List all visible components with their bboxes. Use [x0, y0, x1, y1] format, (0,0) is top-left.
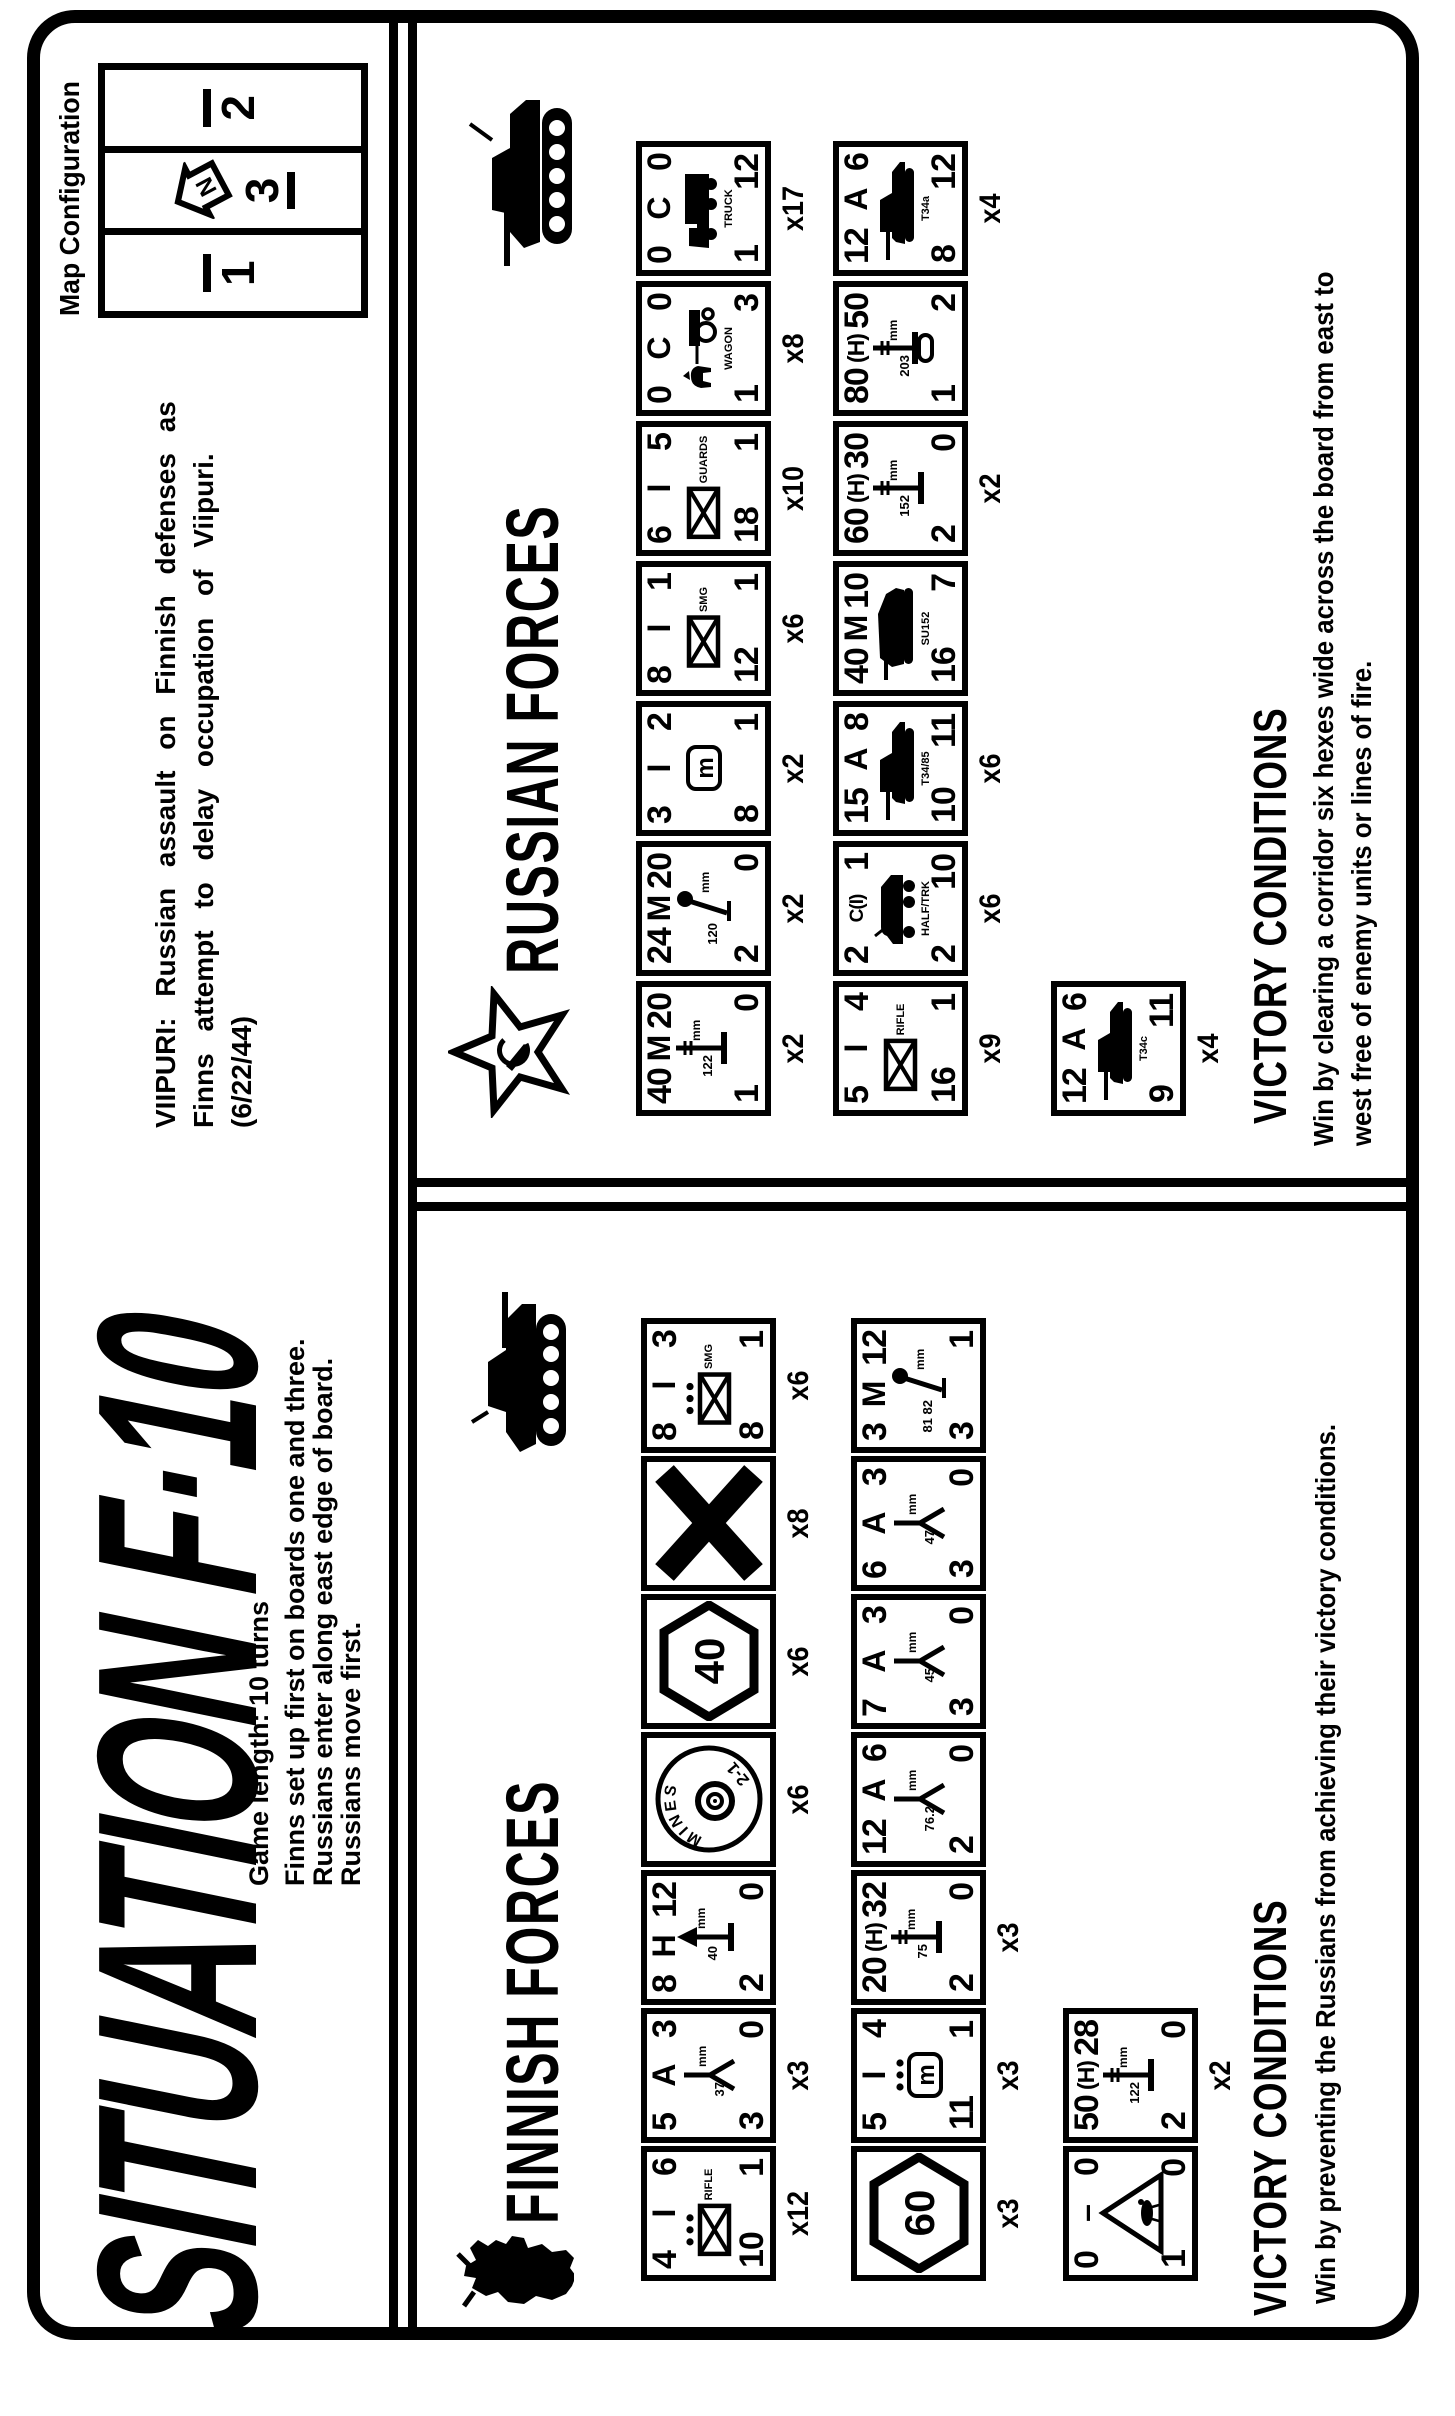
antitank-gun-symbol-icon: 76.2 mm	[888, 1745, 950, 1855]
map-board-1: 1	[105, 228, 361, 311]
north-arrow-icon: N	[171, 159, 229, 223]
counter-top-values: 12A6	[1058, 993, 1092, 1104]
mortar-symbol-icon: 120 mm	[673, 854, 735, 964]
russian-victory-conditions-text-line-1: Win by clearing a corridor six hexes wid…	[1310, 272, 1338, 1146]
counter-multiplier: x17	[777, 148, 811, 270]
counter-bottom-values: 111	[945, 2021, 979, 2130]
block-x-symbol-icon	[647, 1462, 770, 1585]
counter-top-values: 15A8	[840, 713, 874, 824]
board-number: 3	[235, 172, 295, 210]
counter-multiplier: x6	[782, 1325, 816, 1447]
counter-su152: 40M10 SU152 167	[833, 561, 968, 696]
counter-bottom-values: 10	[1157, 2159, 1191, 2268]
header-divider-rule-1	[389, 23, 398, 2327]
counter-multiplier: x3	[992, 2153, 1026, 2275]
counter-bottom-values: 10	[730, 994, 764, 1103]
svg-text:mm: mm	[905, 1494, 919, 1515]
counter-multiplier: x6	[974, 708, 1008, 830]
counter-top-values: 0C0	[643, 153, 677, 264]
card-stage: SITUATION F·10 VIIPURI: Russian assault …	[0, 0, 1455, 2416]
board-number: 1	[203, 254, 263, 292]
svg-text:75: 75	[915, 1945, 930, 1959]
counter-bottom-values: 20	[945, 1883, 979, 1992]
hex-marker-icon: 60	[866, 2154, 972, 2274]
svg-text:mm: mm	[1116, 2047, 1130, 2068]
svg-text:81 82: 81 82	[920, 1401, 935, 1434]
counter-bottom-values: 30	[945, 1607, 979, 1716]
counter-multiplier: x6	[777, 568, 811, 690]
svg-text:122: 122	[1127, 2083, 1142, 2105]
counter-75mm: 20(H)32 75 mm 20	[851, 1870, 986, 2005]
svg-text:mm: mm	[886, 320, 900, 341]
counter-bottom-values: 30	[735, 2021, 769, 2130]
counter-bottom-values: 911	[1145, 994, 1179, 1103]
counter-bottom-values: 20	[945, 1745, 979, 1854]
counter-top-values: 12A6	[840, 153, 874, 264]
first-move-note: Russians move first.	[338, 1622, 365, 1886]
counter-bottom-values: 20	[735, 1883, 769, 1992]
counter-203mm: 80(H)50 203 mm 12	[833, 281, 968, 416]
counter-top-values: 5I4	[858, 2020, 892, 2131]
counter-tri: 0–0 10	[1063, 2146, 1198, 2281]
setup-note-finns: Finns set up first on boards one and thr…	[282, 1338, 309, 1886]
finnish-tank-illustration-icon	[462, 1290, 582, 1472]
counter-multiplier: x2	[777, 988, 811, 1110]
truck-silhouette-icon	[673, 157, 719, 261]
counter-multiplier: x6	[782, 1601, 816, 1723]
counter-top-values: 8I1	[643, 573, 677, 684]
counter-81-82mm: 3M12 81 82 mm 31	[851, 1318, 986, 1453]
finnish-lion-emblem-icon	[444, 2232, 574, 2324]
counter-multiplier: x3	[992, 1877, 1026, 1999]
infantry-symbol-icon: SMG	[685, 1344, 733, 1427]
counter-bottom-values: 1011	[927, 714, 961, 823]
counter-multiplier: x6	[782, 1739, 816, 1861]
infantry-symbol-icon: RIFLE	[883, 1004, 919, 1094]
setup-note-russians: Russians enter along east edge of board.	[310, 1358, 337, 1886]
antitank-gun-symbol-icon: 37 mm	[678, 2021, 740, 2131]
svg-text:40: 40	[686, 1638, 733, 1685]
infantry-symbol-icon: GUARDS	[686, 436, 722, 542]
svg-text:mm: mm	[689, 1020, 703, 1041]
counter-bottom-values: 13	[730, 294, 764, 403]
horse-wagon-silhouette-icon	[673, 297, 719, 401]
svg-text:mm: mm	[695, 2046, 709, 2067]
counter-bottom-values: 812	[927, 154, 961, 263]
counter-bottom-values: 20	[927, 434, 961, 543]
counter-t34-85: 15A8 T34/85 1011	[833, 701, 968, 836]
soviet-star-emblem-icon	[448, 986, 576, 1118]
machinegun-symbol-icon: m	[686, 743, 722, 795]
counter-multiplier: x2	[1204, 2015, 1238, 2137]
svg-text:40: 40	[705, 1947, 720, 1961]
counter-bottom-values: 81	[735, 1331, 769, 1440]
game-length: Game length: 10 turns	[246, 1601, 273, 1886]
counter-unit: 3I2 m 81	[636, 701, 771, 836]
board-number: 2	[203, 89, 263, 127]
section-divider-rule-1	[417, 1202, 1406, 1211]
counter-wagon: 0C0 WAGON 13	[636, 281, 771, 416]
russian-forces-heading: RUSSIAN FORCES	[496, 505, 570, 974]
scenario-description-line-1: VIIPURI: Russian assault on Finnish defe…	[152, 401, 180, 1128]
counter-40mm: 8H12 40 mm 20	[641, 1870, 776, 2005]
map-board-2: 2	[105, 70, 361, 146]
counter-bottom-values: 30	[945, 1469, 979, 1578]
counter-mines: MINES 2-1	[641, 1732, 776, 1867]
svg-text:mm: mm	[694, 1908, 708, 1929]
counter-multiplier: x6	[974, 848, 1008, 970]
counter-hex-40: 40	[641, 1594, 776, 1729]
counter-smg: 8I3 SMG 81	[641, 1318, 776, 1453]
counter-top-values: 5I4	[840, 993, 874, 1104]
svg-text:152: 152	[897, 496, 912, 518]
counter-multiplier: x10	[777, 428, 811, 550]
counter-45mm: 7A3 45 mm 30	[851, 1594, 986, 1729]
counter-hex-60: 60	[851, 2146, 986, 2281]
scanned-situation-card: SITUATION F·10 VIIPURI: Russian assault …	[0, 0, 1455, 2416]
counter-multiplier: x3	[782, 2015, 816, 2137]
counter-smg: 8I1 SMG 121	[636, 561, 771, 696]
counter-bottom-values: 121	[730, 574, 764, 683]
counter-122mm: 50(H)28 122 mm 20	[1063, 2008, 1198, 2143]
counter-x	[641, 1456, 776, 1591]
counter-bottom-values: 101	[735, 2159, 769, 2268]
antitank-gun-symbol-icon: 45 mm	[888, 1607, 950, 1717]
counter-top-values: 8I3	[648, 1330, 682, 1441]
map-board-3: N 3	[105, 146, 361, 229]
counter-top-values: 40M10	[840, 573, 874, 684]
tank-silhouette-icon	[1088, 997, 1134, 1101]
counter-unit: 5I4 m 111	[851, 2008, 986, 2143]
counter-multiplier: x3	[992, 2015, 1026, 2137]
counter-152mm: 60(H)30 152 mm 20	[833, 421, 968, 556]
counter-half-trk: 2C(I)1 HALF/TRK 210	[833, 841, 968, 976]
counter-rifle: 4I6 RIFLE 101	[641, 2146, 776, 2281]
counter-bottom-values: 81	[730, 714, 764, 823]
counter-top-values: 4I6	[648, 2158, 682, 2269]
tank-silhouette-icon	[870, 717, 916, 821]
counter-multiplier: x8	[782, 1463, 816, 1585]
svg-text:mm: mm	[913, 1349, 927, 1370]
counter-t34a: 12A6 T34a 812	[833, 141, 968, 276]
minefield-symbol-icon: MINES 2-1	[651, 1742, 767, 1858]
scenario-date: (6/22/44)	[228, 1016, 256, 1128]
section-divider-rule-2	[417, 1178, 1406, 1187]
counter-bottom-values: 161	[927, 994, 961, 1103]
counter-bottom-values: 31	[945, 1331, 979, 1440]
counter-multiplier: x2	[777, 848, 811, 970]
svg-text:mm: mm	[905, 1632, 919, 1653]
map-configuration-box: 1 N 3 2	[98, 63, 368, 318]
infantry-symbol-icon: SMG	[686, 587, 722, 670]
scenario-description-line-2: Finns attempt to delay occupation of Vii…	[190, 453, 218, 1128]
svg-text:203: 203	[897, 356, 912, 378]
counter-multiplier: x4	[974, 148, 1008, 270]
svg-text:120: 120	[705, 924, 720, 946]
counter-top-values: 6I5	[643, 433, 677, 544]
russian-victory-conditions-heading: VICTORY CONDITIONS	[1247, 707, 1293, 1124]
counter-bottom-values: 20	[1157, 2021, 1191, 2130]
counter-multiplier: x2	[777, 708, 811, 830]
svg-text:m: m	[913, 2065, 940, 2086]
assault-gun-silhouette-icon	[870, 577, 916, 681]
hex-marker-icon: 40	[656, 1602, 762, 1722]
svg-text:mm: mm	[905, 1770, 919, 1791]
svg-text:m: m	[692, 758, 719, 779]
counter-truck: 0C0 TRUCK 112	[636, 141, 771, 276]
svg-text:mm: mm	[698, 872, 712, 893]
finnish-victory-conditions-text: Win by preventing the Russians from achi…	[1312, 1424, 1340, 2304]
machinegun-symbol-icon: m	[895, 2050, 943, 2102]
counter-bottom-values: 167	[927, 574, 961, 683]
counter-multiplier: x8	[777, 288, 811, 410]
counter-top-values: 0C0	[643, 293, 677, 404]
counter-bottom-values: 181	[730, 434, 764, 543]
counter-guards: 6I5 GUARDS 181	[636, 421, 771, 556]
counter-bottom-values: 20	[730, 854, 764, 963]
svg-text:60: 60	[896, 2190, 943, 2237]
map-configuration-label: Map Configuration	[54, 81, 86, 316]
counter-multiplier: x4	[1192, 988, 1226, 1110]
counter-bottom-values: 112	[730, 154, 764, 263]
svg-text:mm: mm	[904, 1909, 918, 1930]
header-divider-rule-2	[408, 23, 417, 2327]
counter-76-2mm: 12A6 76.2 mm 20	[851, 1732, 986, 1867]
tank-silhouette-icon	[870, 157, 916, 261]
svg-text:mm: mm	[886, 460, 900, 481]
finnish-forces-heading: FINNISH FORCES	[496, 1780, 570, 2224]
finnish-victory-conditions-heading: VICTORY CONDITIONS	[1247, 1899, 1293, 2316]
russian-tank-illustration-icon	[466, 86, 588, 268]
counter-multiplier: x9	[974, 988, 1008, 1110]
mortar-symbol-icon: 81 82 mm	[888, 1331, 950, 1441]
antitank-gun-symbol-icon: 47 mm	[888, 1469, 950, 1579]
infantry-symbol-icon: RIFLE	[685, 2169, 733, 2259]
halftrack-silhouette-icon	[869, 859, 917, 959]
counter-47mm: 6A3 47 mm 30	[851, 1456, 986, 1591]
counter-37mm: 5A3 37 mm 30	[641, 2008, 776, 2143]
svg-text:122: 122	[700, 1056, 715, 1078]
counter-120mm: 24M20 120 mm 20	[636, 841, 771, 976]
counter-t34c: 12A6 T34c 911	[1051, 981, 1186, 1116]
counter-top-values: 3I2	[643, 713, 677, 824]
counter-122mm: 40M20 122 mm 10	[636, 981, 771, 1116]
counter-multiplier: x12	[782, 2153, 816, 2275]
russian-victory-conditions-text-line-2: west free of enemy units or lines of fir…	[1348, 661, 1376, 1146]
counter-bottom-values: 12	[927, 294, 961, 403]
counter-bottom-values: 210	[927, 854, 961, 963]
counter-rifle: 5I4 RIFLE 161	[833, 981, 968, 1116]
counter-multiplier: x2	[974, 428, 1008, 550]
